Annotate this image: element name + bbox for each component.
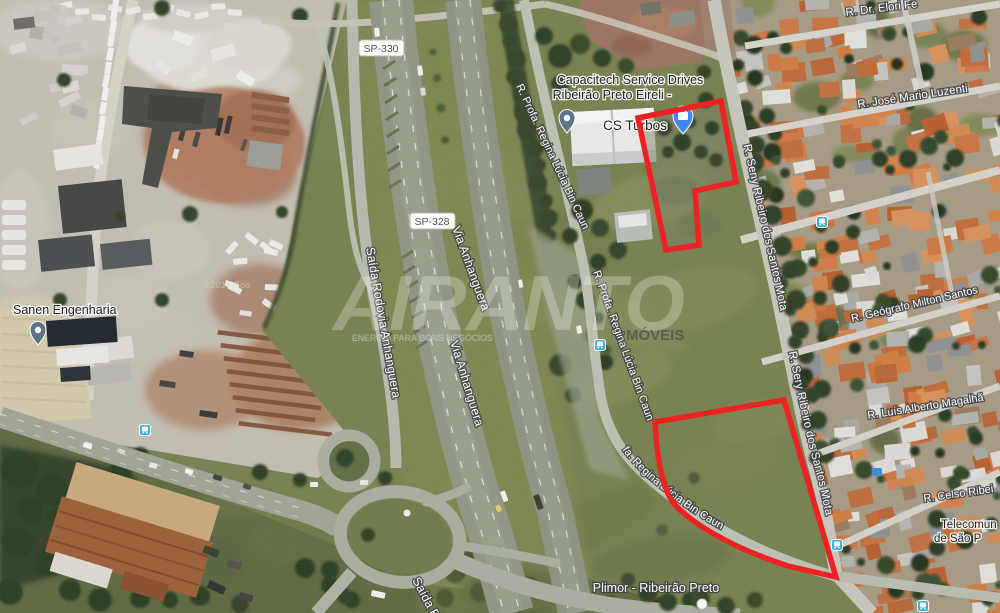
svg-text:Plimor - Ribeirão Preto: Plimor - Ribeirão Preto [593, 581, 719, 595]
svg-text:Telecomun: Telecomun [941, 519, 997, 531]
svg-text:CS Turbos: CS Turbos [603, 118, 667, 133]
svg-text:SP-328: SP-328 [414, 216, 449, 228]
svg-text:MÓVEIS: MÓVEIS [626, 326, 684, 344]
svg-text:©2018 Goo: ©2018 Goo [204, 280, 250, 290]
svg-text:Sanen Engenharia: Sanen Engenharia [13, 303, 117, 317]
svg-text:SP-330: SP-330 [363, 43, 398, 55]
svg-text:ENERGIA PARA BONS NEGÓCIOS: ENERGIA PARA BONS NEGÓCIOS [352, 332, 494, 343]
svg-text:Ribeirão Preto Eireli -: Ribeirão Preto Eireli - [553, 88, 672, 102]
svg-text:de São P: de São P [934, 533, 982, 545]
svg-text:Capacitech Service Drives: Capacitech Service Drives [557, 73, 704, 87]
